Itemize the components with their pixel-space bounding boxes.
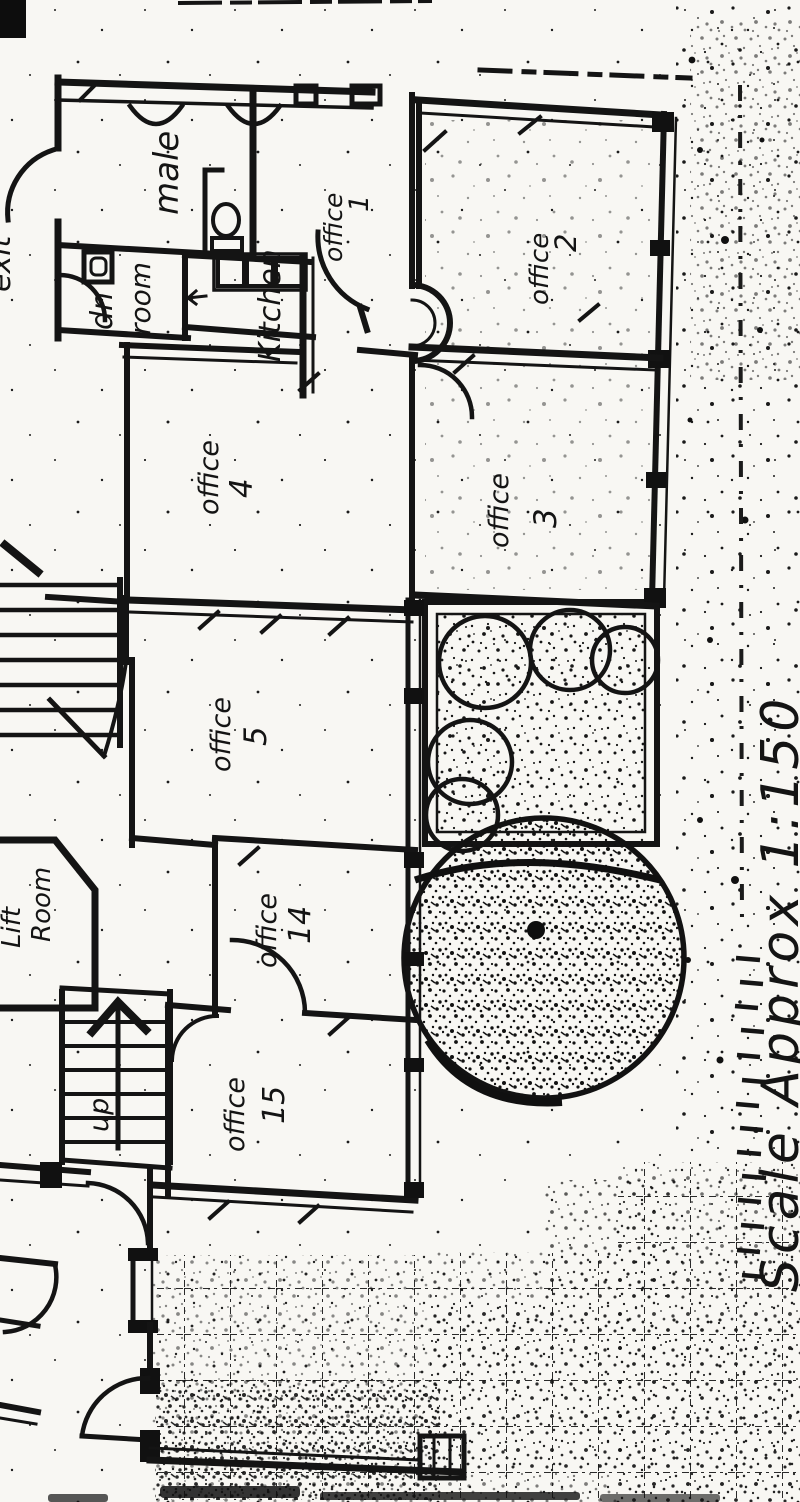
label-office14-num: 14 — [283, 906, 318, 944]
shrub — [592, 627, 658, 693]
label-office15-num: 15 — [257, 1086, 292, 1124]
label-dn: dn — [85, 292, 120, 330]
window-jamb — [404, 1182, 424, 1198]
scan-blob — [0, 0, 26, 38]
label-office3-word: office — [484, 473, 515, 548]
window-jamb — [404, 952, 424, 966]
label-office14-word: office — [252, 893, 283, 968]
label-male: male — [147, 131, 187, 215]
scanned-floor-plan-page: male dn room Kitchen office 1 office 2 o… — [0, 0, 800, 1502]
door-jamb — [40, 1162, 62, 1188]
label-office4-num: 4 — [224, 478, 260, 498]
window-jamb — [128, 1248, 158, 1261]
label-office5-num: 5 — [238, 726, 274, 746]
label-office2-num: 2 — [549, 234, 583, 252]
window-jamb — [404, 1058, 424, 1072]
label-office4-word: office — [194, 440, 225, 515]
window-jamb — [650, 240, 670, 256]
window-jamb — [404, 688, 424, 704]
label-exit: exit — [0, 234, 18, 292]
label-lift: Lift — [0, 906, 27, 948]
window-jamb — [404, 600, 424, 616]
label-kitchen: Kitchen — [253, 249, 288, 362]
label-office3-num: 3 — [528, 508, 564, 528]
window-jamb — [128, 1320, 158, 1333]
tree-trunk-dot — [527, 921, 545, 939]
floor-plan-drawing: male dn room Kitchen office 1 office 2 o… — [0, 0, 800, 1502]
planted-bed — [425, 602, 658, 851]
label-office5-word: office — [206, 697, 237, 772]
label-lift-room: Room — [27, 867, 57, 942]
label-scale-note: Scale Approx 1:150 — [751, 694, 800, 1292]
window-jamb — [404, 852, 424, 868]
label-office1-num: 1 — [344, 195, 375, 212]
door-jamb — [140, 1368, 160, 1394]
window-jamb — [652, 112, 674, 132]
label-up: up — [84, 1098, 115, 1132]
window-jamb — [646, 472, 666, 488]
shrub — [439, 616, 531, 708]
tree — [404, 818, 684, 1102]
label-office15-word: office — [220, 1077, 251, 1152]
label-room: room — [124, 262, 157, 335]
